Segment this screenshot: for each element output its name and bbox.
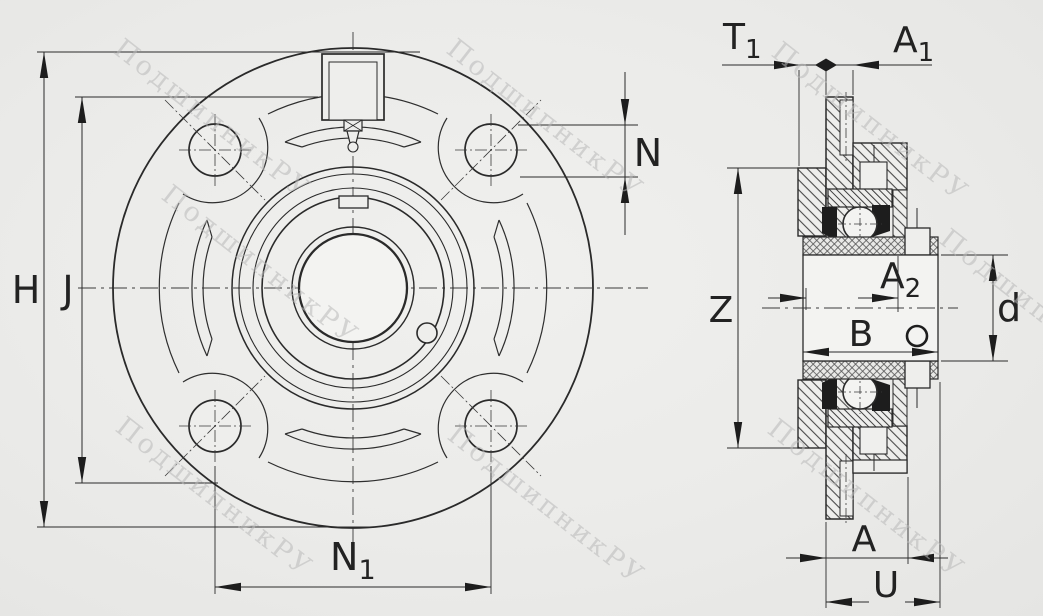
bearing-drawing-canvas: H J N N1 — [0, 0, 1043, 616]
dim-label-B: B — [849, 314, 874, 355]
dim-label-T1: T1 — [722, 17, 762, 65]
dim-label-H: H — [12, 268, 41, 312]
set-screw-hole — [417, 323, 437, 343]
dim-label-N1: N1 — [330, 535, 376, 586]
watermark-text: ПодшипникРУ — [442, 419, 651, 592]
dim-label-N: N — [634, 131, 662, 175]
outer-ring-bottom — [828, 409, 892, 427]
watermark-text: ПодшипникРУ — [441, 33, 650, 206]
dim-label-U: U — [873, 565, 899, 606]
dim-label-Z: Z — [709, 290, 734, 331]
dim-label-J: J — [60, 268, 73, 312]
setscrew-boss-bottom — [905, 361, 930, 388]
grease-passage-top — [860, 162, 887, 190]
technical-drawing: H J N N1 — [0, 0, 1043, 616]
grease-fitting-boss — [322, 54, 384, 152]
grease-passage-bottom — [860, 426, 887, 454]
setscrew-hole-section — [907, 326, 927, 346]
watermark-text: ПодшипникРУ — [934, 223, 1043, 396]
keyway-notch — [339, 196, 368, 208]
dim-label-A: A — [852, 519, 877, 560]
pilot-face — [853, 460, 907, 473]
dim-label-A1: A1 — [893, 20, 934, 68]
cover-top — [798, 168, 826, 236]
setscrew-boss-top — [905, 228, 930, 255]
